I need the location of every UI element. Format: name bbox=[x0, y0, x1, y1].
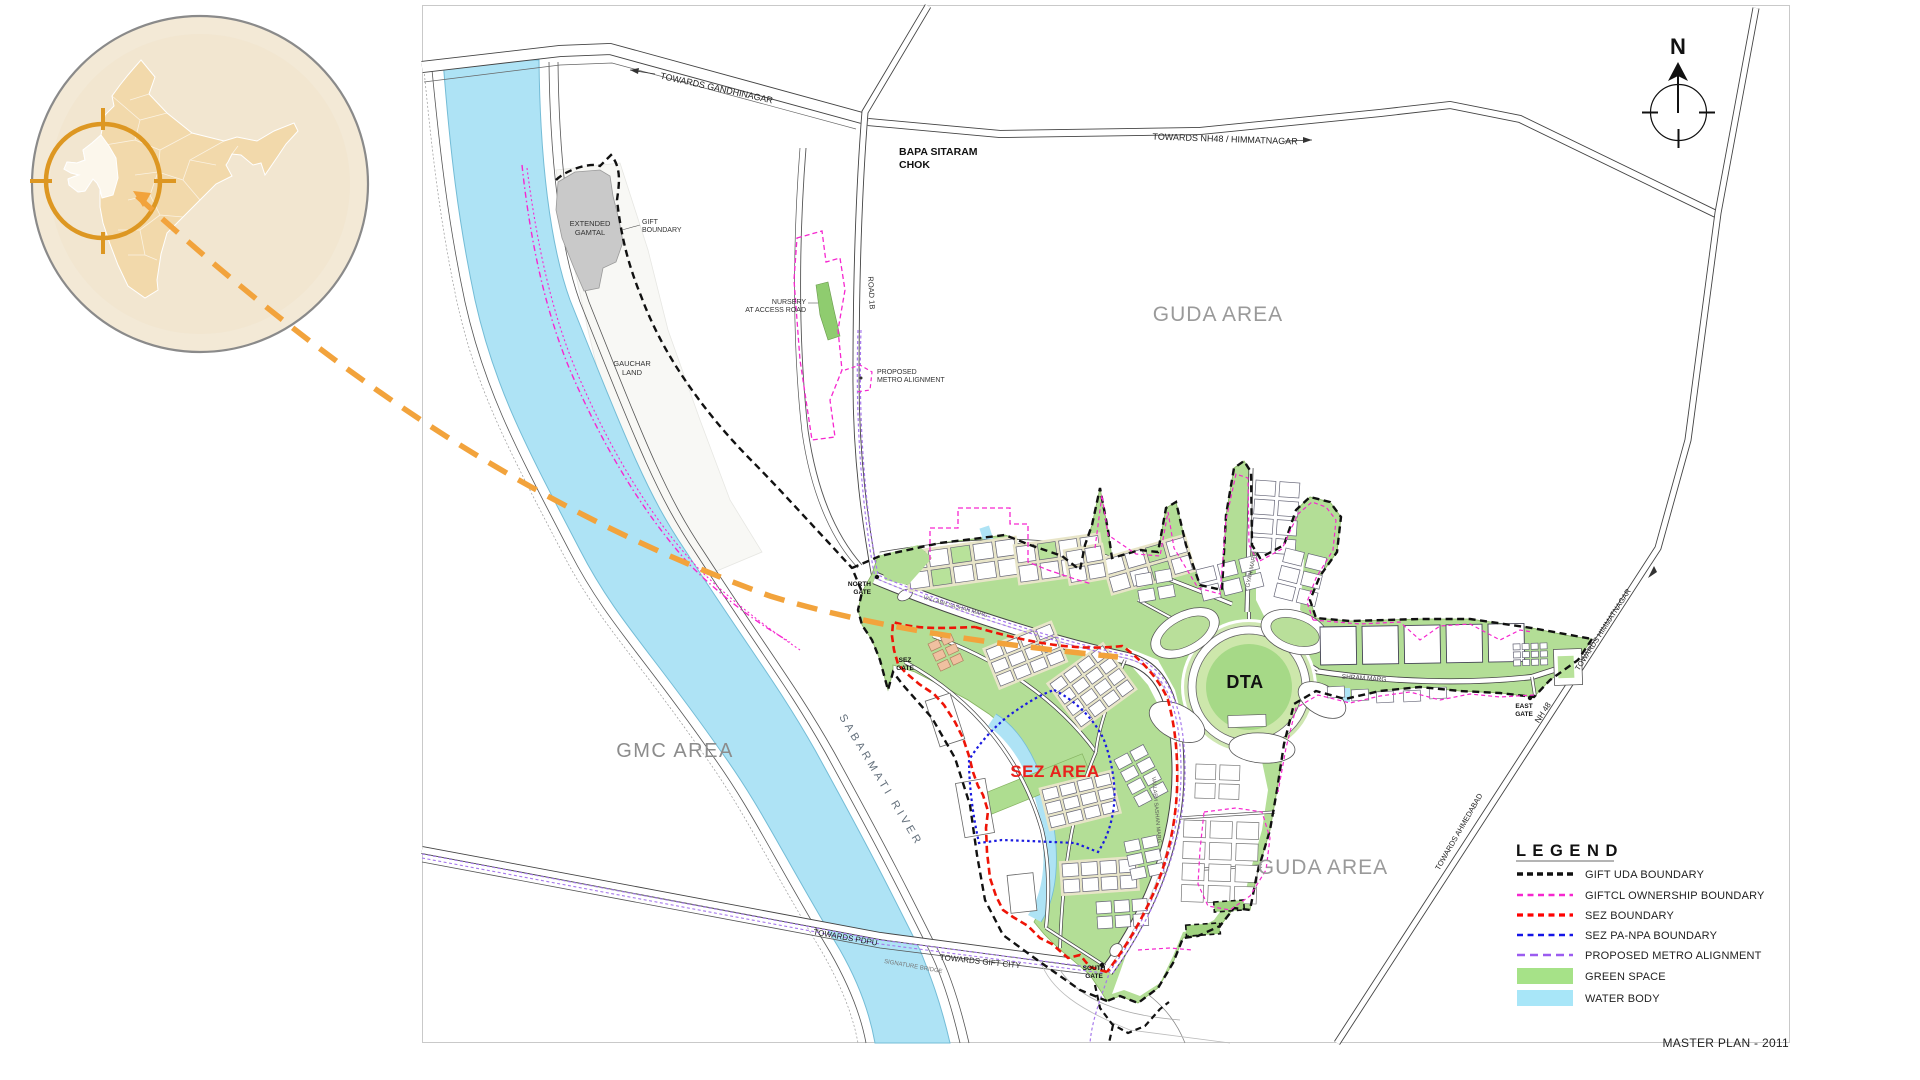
svg-text:BAPA SITARAM: BAPA SITARAM bbox=[899, 146, 978, 158]
svg-text:PROPOSED: PROPOSED bbox=[877, 369, 917, 376]
svg-text:ROAD 1B: ROAD 1B bbox=[866, 276, 877, 309]
svg-text:AT ACCESS ROAD: AT ACCESS ROAD bbox=[745, 307, 806, 314]
svg-text:GAMTAL: GAMTAL bbox=[575, 228, 605, 237]
svg-text:GIFT UDA BOUNDARY: GIFT UDA BOUNDARY bbox=[1585, 869, 1705, 881]
svg-text:CHOK: CHOK bbox=[899, 159, 930, 171]
svg-text:GUDA AREA: GUDA AREA bbox=[1258, 856, 1388, 879]
svg-text:GAUCHAR: GAUCHAR bbox=[613, 359, 651, 368]
svg-text:NURSERY: NURSERY bbox=[772, 299, 806, 306]
svg-text:GUDA AREA: GUDA AREA bbox=[1153, 303, 1283, 326]
svg-text:NORTH: NORTH bbox=[848, 581, 871, 588]
svg-text:WATER BODY: WATER BODY bbox=[1585, 993, 1660, 1005]
svg-text:EAST: EAST bbox=[1515, 703, 1532, 710]
svg-text:L E G E N D: L E G E N D bbox=[1516, 842, 1618, 860]
svg-text:METRO ALIGNMENT: METRO ALIGNMENT bbox=[877, 377, 945, 384]
svg-text:GATE: GATE bbox=[1085, 973, 1103, 980]
svg-text:DTA: DTA bbox=[1226, 672, 1263, 692]
svg-text:EXTENDED: EXTENDED bbox=[570, 219, 611, 228]
svg-text:GATE: GATE bbox=[1515, 711, 1533, 718]
svg-text:SOUTH: SOUTH bbox=[1083, 965, 1106, 972]
svg-text:SEZ BOUNDARY: SEZ BOUNDARY bbox=[1585, 910, 1674, 922]
svg-text:SEZ PA-NPA BOUNDARY: SEZ PA-NPA BOUNDARY bbox=[1585, 930, 1718, 942]
svg-text:GIFT: GIFT bbox=[642, 219, 659, 226]
svg-text:N: N bbox=[1670, 34, 1686, 59]
svg-text:GATE: GATE bbox=[853, 589, 871, 596]
svg-text:GATE: GATE bbox=[896, 665, 914, 672]
svg-text:PROPOSED METRO ALIGNMENT: PROPOSED METRO ALIGNMENT bbox=[1585, 950, 1762, 962]
svg-text:LAND: LAND bbox=[622, 368, 643, 377]
svg-text:SEZ: SEZ bbox=[899, 657, 912, 664]
svg-text:BOUNDARY: BOUNDARY bbox=[642, 227, 682, 234]
svg-text:GIFTCL OWNERSHIP BOUNDARY: GIFTCL OWNERSHIP BOUNDARY bbox=[1585, 890, 1765, 902]
svg-text:SEZ AREA: SEZ AREA bbox=[1010, 762, 1099, 781]
svg-text:MASTER PLAN - 2011: MASTER PLAN - 2011 bbox=[1662, 1036, 1789, 1050]
svg-text:GREEN SPACE: GREEN SPACE bbox=[1585, 971, 1666, 983]
svg-text:GMC AREA: GMC AREA bbox=[616, 740, 734, 762]
